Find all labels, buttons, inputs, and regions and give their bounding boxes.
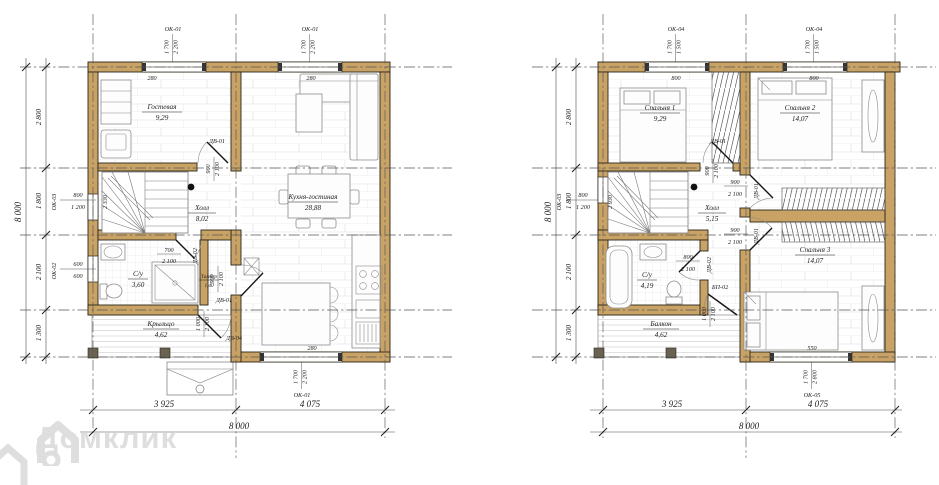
door-height: 2 100	[728, 191, 743, 198]
room-name: С/у	[642, 271, 653, 279]
room-area: 28,88	[305, 204, 322, 212]
window-height: 2 200	[310, 39, 317, 54]
window-height: 2 200	[302, 369, 309, 384]
dim-left-2: 1 800	[565, 193, 573, 210]
dim-bottom-total: 8 000	[739, 421, 760, 431]
wall	[98, 163, 197, 171]
door-height: 2 100	[710, 306, 717, 321]
porch-post	[160, 348, 170, 358]
window-label: ОК-01	[302, 26, 319, 33]
door-label: ДВ-01	[208, 138, 225, 145]
room-name: Спальня 2	[785, 104, 816, 112]
dim-left-total: 8 000	[543, 201, 553, 222]
watermark-house-partial	[0, 448, 24, 485]
wardrobe-bedroom2	[782, 188, 885, 210]
kitchen-island	[262, 283, 338, 345]
room-area: 9,29	[654, 115, 667, 123]
room-area: 4,62	[155, 331, 168, 339]
floor-plan-canvas: Гостевая 9,29 Холл 8,02 Кухня-гостиная 2…	[0, 0, 939, 485]
window-height: 2 800	[812, 369, 819, 384]
dim-left-4: 1 300	[35, 325, 43, 342]
room-area: 4,62	[655, 331, 668, 339]
window-width: 1 700	[805, 39, 812, 54]
room-area: 5,15	[706, 215, 719, 223]
door-height: 2 100	[681, 266, 696, 273]
window-width: 600	[73, 261, 83, 268]
second-floor-plan: Спальня 1 9,29 Спальня 2 14,07 Холл 5,15…	[556, 26, 900, 399]
balcony-post	[666, 348, 676, 358]
dim-bottom-2: 4 075	[300, 399, 321, 409]
wall	[885, 72, 895, 362]
dim-bottom-2: 4 075	[808, 399, 829, 409]
window-label: ОК-03	[556, 194, 563, 211]
wall	[700, 240, 708, 251]
door-label: ДВ-01	[753, 228, 760, 245]
wall	[733, 163, 740, 171]
guest-room-furniture	[101, 80, 131, 158]
window-label: ОК-04	[668, 26, 685, 33]
room-area: 14,07	[807, 257, 824, 265]
door-height: 2 100	[214, 161, 221, 176]
first-floor-plan: Гостевая 9,29 Холл 8,02 Кухня-гостиная 2…	[51, 26, 390, 399]
door-height: 2 100	[218, 271, 225, 286]
dim-left-3: 2 100	[565, 264, 573, 281]
stair-width-dim: 2 330	[102, 194, 109, 209]
window-offset: 280	[306, 75, 316, 82]
room-name: Балкон	[649, 320, 672, 328]
wardrobe-mirror-bedroom3	[862, 286, 884, 350]
door-height: 2 100	[713, 163, 720, 178]
window-label: ОК-01	[165, 26, 182, 33]
window-offset: 800	[809, 75, 819, 82]
door-label: ДВ-01	[215, 297, 232, 304]
room-name: С/у	[133, 270, 144, 278]
door-width: 900	[209, 273, 216, 283]
wall	[740, 72, 750, 175]
window-width: 1 700	[667, 39, 674, 54]
window-offset: 800	[671, 75, 681, 82]
room-name: Гостевая	[147, 103, 178, 111]
window-height: 600	[73, 273, 83, 280]
dim-left-total: 8 000	[13, 201, 23, 222]
room-name: Холл	[194, 204, 209, 212]
dim-left-1: 2 800	[565, 109, 573, 126]
door-label: ДВ-02	[706, 257, 713, 274]
window-width: 800	[73, 192, 83, 199]
wardrobe-bedroom1	[712, 72, 740, 163]
window-label: ОК-05	[804, 392, 821, 399]
window-height: 1 500	[814, 39, 821, 54]
room-name: Кухня-гостиная	[288, 193, 339, 201]
window-width: 1 700	[803, 369, 810, 384]
door-label: ДВ-01	[709, 138, 726, 145]
window-offset: 550	[807, 345, 817, 352]
wall	[750, 210, 885, 222]
coffee-table	[296, 94, 322, 132]
entrance-steps	[167, 362, 233, 395]
wall	[598, 163, 700, 171]
staircase2	[608, 172, 688, 233]
staircase	[102, 172, 188, 233]
room-area: 8,02	[196, 215, 209, 223]
dim-left-1: 2 800	[35, 109, 43, 126]
door-label: ДВ-01	[753, 183, 760, 200]
door-width: 700	[164, 247, 174, 254]
dim-bottom-1: 3 925	[661, 399, 683, 409]
door-width: 900	[730, 227, 740, 234]
wardrobe-bedroom3	[782, 222, 885, 242]
floor-plan-sheet: Гостевая 9,29 Холл 8,02 Кухня-гостиная 2…	[0, 0, 939, 485]
door-label: ДВ-02	[192, 248, 199, 265]
room-area: 14,07	[792, 115, 809, 123]
door-width: 1 000	[195, 316, 202, 331]
door-label: ДВ-04	[225, 335, 242, 342]
room-area: 4,19	[641, 282, 654, 290]
window-width: 1 700	[164, 39, 171, 54]
window-width: 1 700	[293, 369, 300, 384]
section-mark	[188, 184, 195, 191]
window-height: 2 200	[173, 39, 180, 54]
room-name: Крыльцо	[147, 320, 175, 328]
wall	[740, 208, 750, 217]
wardrobe-mirror-bedroom2	[862, 80, 884, 152]
window-height: 1 200	[576, 204, 591, 211]
dim-left-3: 2 100	[35, 264, 43, 281]
door-width: 800	[683, 254, 693, 261]
door-width: 1 000	[701, 306, 708, 321]
dim-left-2: 1 800	[35, 193, 43, 210]
door-height: 2 100	[728, 239, 743, 246]
window-label: ОК-04	[806, 26, 823, 33]
window-label: ОК-01	[294, 392, 311, 399]
room-name: Спальня 3	[800, 246, 831, 254]
section-mark	[691, 184, 698, 191]
window-offset: 280	[147, 75, 157, 82]
dim-bottom-1: 3 925	[153, 399, 175, 409]
window-label: ОК-02	[51, 263, 58, 280]
wall	[200, 240, 208, 305]
door-height: 2 100	[162, 258, 177, 265]
door-width: 900	[730, 179, 740, 186]
window-height: 1 200	[71, 204, 86, 211]
bed-bedroom3	[744, 292, 838, 350]
door-height: 2 100	[204, 316, 211, 331]
window-height: 1 500	[676, 39, 683, 54]
window-width: 1 700	[301, 39, 308, 54]
dim-left-4: 1 300	[565, 325, 573, 342]
room-area: 3,60	[131, 281, 145, 289]
room-name: Спальня 1	[645, 104, 676, 112]
room-area: 9,29	[156, 114, 169, 122]
kitchen-counter	[352, 235, 382, 348]
dim-bottom-total: 8 000	[229, 421, 250, 431]
room-name: Холл	[704, 204, 719, 212]
window-width: 800	[578, 192, 588, 199]
window-offset: 280	[307, 345, 317, 352]
window-label: ОК-03	[51, 194, 58, 211]
stair-width-dim: 2 930	[607, 194, 614, 209]
door-width: 900	[205, 163, 212, 173]
door-label: БП-02	[711, 284, 728, 291]
balcony-post	[594, 348, 604, 358]
door-width: 900	[704, 165, 711, 175]
bed-bedroom1	[620, 88, 686, 162]
